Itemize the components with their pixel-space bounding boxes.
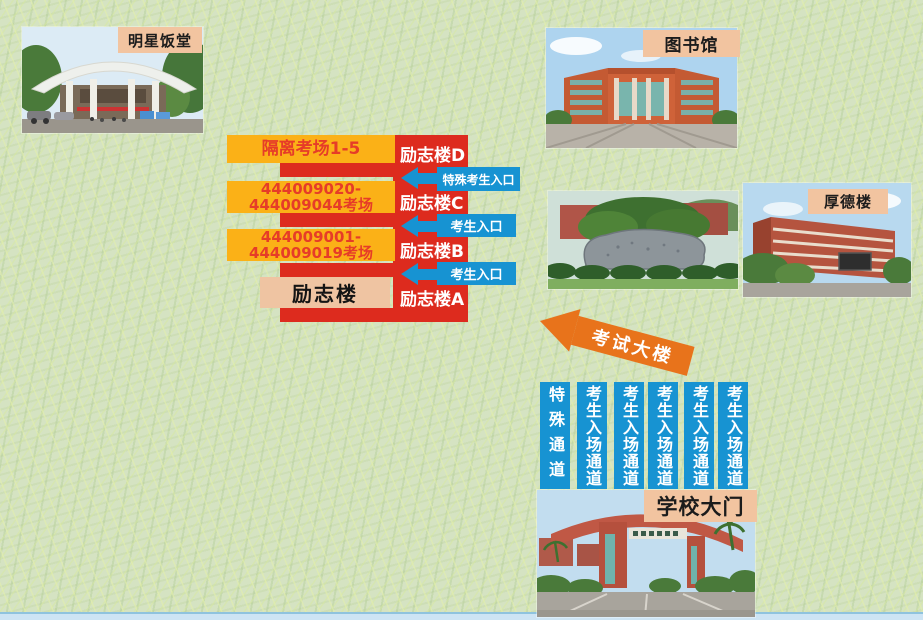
room-box-020-044-line1: 444009020- <box>261 181 361 197</box>
channel-entry-2: 考生入场通道 <box>614 382 644 489</box>
arrow-stub <box>418 269 441 280</box>
canteen-label: 明星饭堂 <box>118 27 202 53</box>
room-box-001-019-line2: 444009019考场 <box>249 245 373 261</box>
arrow-left-icon <box>401 263 418 285</box>
channel-special: 特殊通道 <box>540 382 570 489</box>
candidate-entrance-label-1: 考生入口 <box>437 214 516 237</box>
bottom-strip <box>0 612 923 620</box>
exam-site-map-slide: 明星饭堂 图书馆 <box>0 0 923 620</box>
channel-special-label: 特殊通道 <box>543 386 567 486</box>
corridor-bar-3 <box>280 263 400 277</box>
arrow-left-icon <box>401 215 418 237</box>
corridor-bar-2 <box>280 213 400 227</box>
lizhi-building-name-box: 励志楼 <box>260 277 390 308</box>
room-box-001-019-line1: 444009001- <box>261 229 361 245</box>
exam-building-arrow: 考试大楼 <box>534 300 698 383</box>
arrow-stub <box>418 173 441 184</box>
room-box-isolation-line1: 隔离考场1-5 <box>262 139 361 159</box>
channel-entry-5-label: 考生入场通道 <box>721 385 745 487</box>
special-candidate-entrance-label: 特殊考生入口 <box>437 167 520 191</box>
entrance-arrow-2 <box>401 263 441 285</box>
library-label: 图书馆 <box>643 30 740 57</box>
entrance-arrow-special <box>401 167 441 189</box>
corridor-bar-4 <box>280 308 400 322</box>
channel-entry-2-label: 考生入场通道 <box>617 385 641 487</box>
channel-entry-4-label: 考生入场通道 <box>687 385 711 487</box>
room-box-001-019: 444009001- 444009019考场 <box>227 229 395 261</box>
channel-entry-3-label: 考生入场通道 <box>651 385 675 487</box>
arrow-left-icon <box>401 167 418 189</box>
exam-building-arrow-label: 考试大楼 <box>571 316 695 376</box>
room-box-isolation: 隔离考场1-5 <box>227 135 395 163</box>
room-box-020-044: 444009020- 444009044考场 <box>227 181 395 213</box>
channel-entry-5: 考生入场通道 <box>718 382 748 489</box>
channel-entry-3: 考生入场通道 <box>648 382 678 489</box>
room-box-020-044-line2: 444009044考场 <box>249 197 373 213</box>
entrance-arrow-1 <box>401 215 441 237</box>
channel-entry-1: 考生入场通道 <box>577 382 607 489</box>
campus-stone-photo-image <box>548 191 738 289</box>
building-label-b: 励志楼B <box>400 243 466 261</box>
gate-label: 学校大门 <box>644 490 757 522</box>
arrow-stub <box>418 221 441 232</box>
candidate-entrance-label-2: 考生入口 <box>437 262 516 285</box>
building-label-c: 励志楼C <box>400 195 466 213</box>
channel-entry-1-label: 考生入场通道 <box>580 385 604 487</box>
campus-stone-photo <box>548 191 738 289</box>
houde-label: 厚德楼 <box>808 189 888 214</box>
building-label-d: 励志楼D <box>400 147 466 165</box>
building-label-a: 励志楼A <box>400 291 466 309</box>
channel-entry-4: 考生入场通道 <box>684 382 714 489</box>
corridor-bar-1 <box>280 163 400 177</box>
